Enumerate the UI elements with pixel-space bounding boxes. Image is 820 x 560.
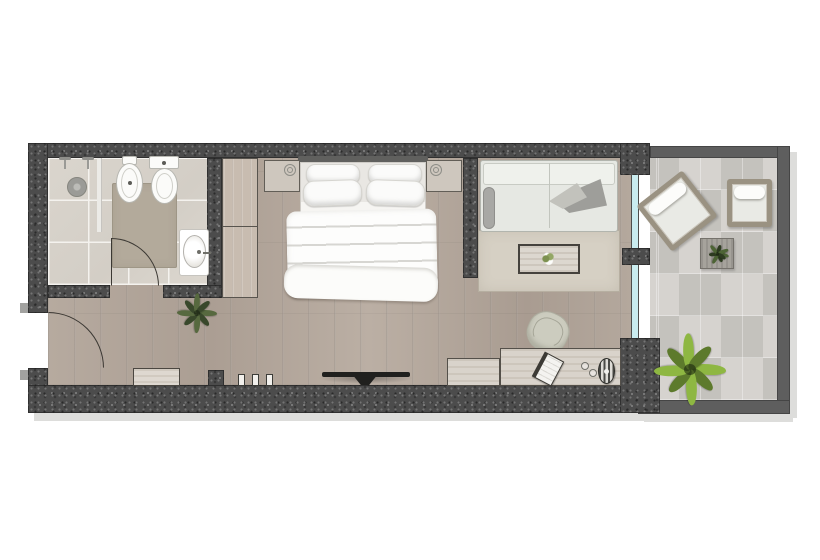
shower-glass-divider	[97, 158, 102, 232]
low-cabinet	[447, 358, 500, 386]
shadow-balcony-right	[790, 152, 797, 418]
reading-lamp-icon	[284, 164, 296, 176]
wall-stub-bottom	[208, 370, 224, 386]
wall-post	[238, 374, 245, 386]
pillow	[303, 179, 363, 207]
glasses-icon	[589, 369, 597, 377]
floor-plan	[0, 0, 820, 560]
luggage-bench	[133, 368, 180, 386]
lounge-bolster	[734, 186, 765, 199]
glasses-icon	[581, 362, 589, 370]
shadow-balcony-bottom	[644, 414, 793, 422]
shower-drain	[67, 177, 87, 197]
balcony-wall-top	[650, 146, 790, 158]
wall-post	[252, 374, 259, 386]
toilet-bowl	[151, 168, 178, 204]
wall-glass-mullion	[622, 248, 650, 265]
balcony-large-plant	[652, 334, 728, 406]
wardrobe	[222, 158, 258, 298]
glass-panel-upper	[631, 175, 639, 248]
sink-basin	[183, 235, 206, 268]
wall-left-upper	[28, 143, 48, 313]
nightstand-right	[426, 160, 462, 192]
bidet	[116, 163, 143, 203]
door-jamb-tab-upper	[20, 303, 28, 313]
desk-lamp	[598, 358, 615, 384]
door-jamb-tab-lower	[20, 370, 28, 380]
wall-bottom	[28, 385, 660, 413]
side-table-plant	[706, 242, 729, 266]
wall-partition-bed-living	[463, 158, 478, 278]
shower-head-icon	[82, 157, 94, 160]
bed-duvet-fold	[284, 264, 439, 302]
hall-plant	[176, 292, 218, 334]
table-flowers	[539, 250, 557, 266]
shower-head-icon	[59, 157, 71, 160]
vanity-counter	[179, 229, 209, 276]
lounge-chair	[727, 179, 772, 227]
sofa-cushion-split	[549, 163, 550, 228]
shadow-bottom	[34, 413, 662, 421]
nightstand-left	[264, 160, 300, 192]
wall-bathroom-right	[207, 158, 222, 298]
sofa	[480, 160, 618, 232]
wall-glass-post-top	[620, 143, 650, 175]
wall-bathroom-bottom-left	[48, 285, 110, 298]
wall-post	[266, 374, 273, 386]
reading-lamp-icon	[430, 164, 442, 176]
balcony-wall-right	[777, 146, 790, 414]
glass-panel-lower	[631, 265, 639, 338]
sofa-bolster-pillow	[483, 187, 495, 229]
pillow	[366, 179, 426, 207]
